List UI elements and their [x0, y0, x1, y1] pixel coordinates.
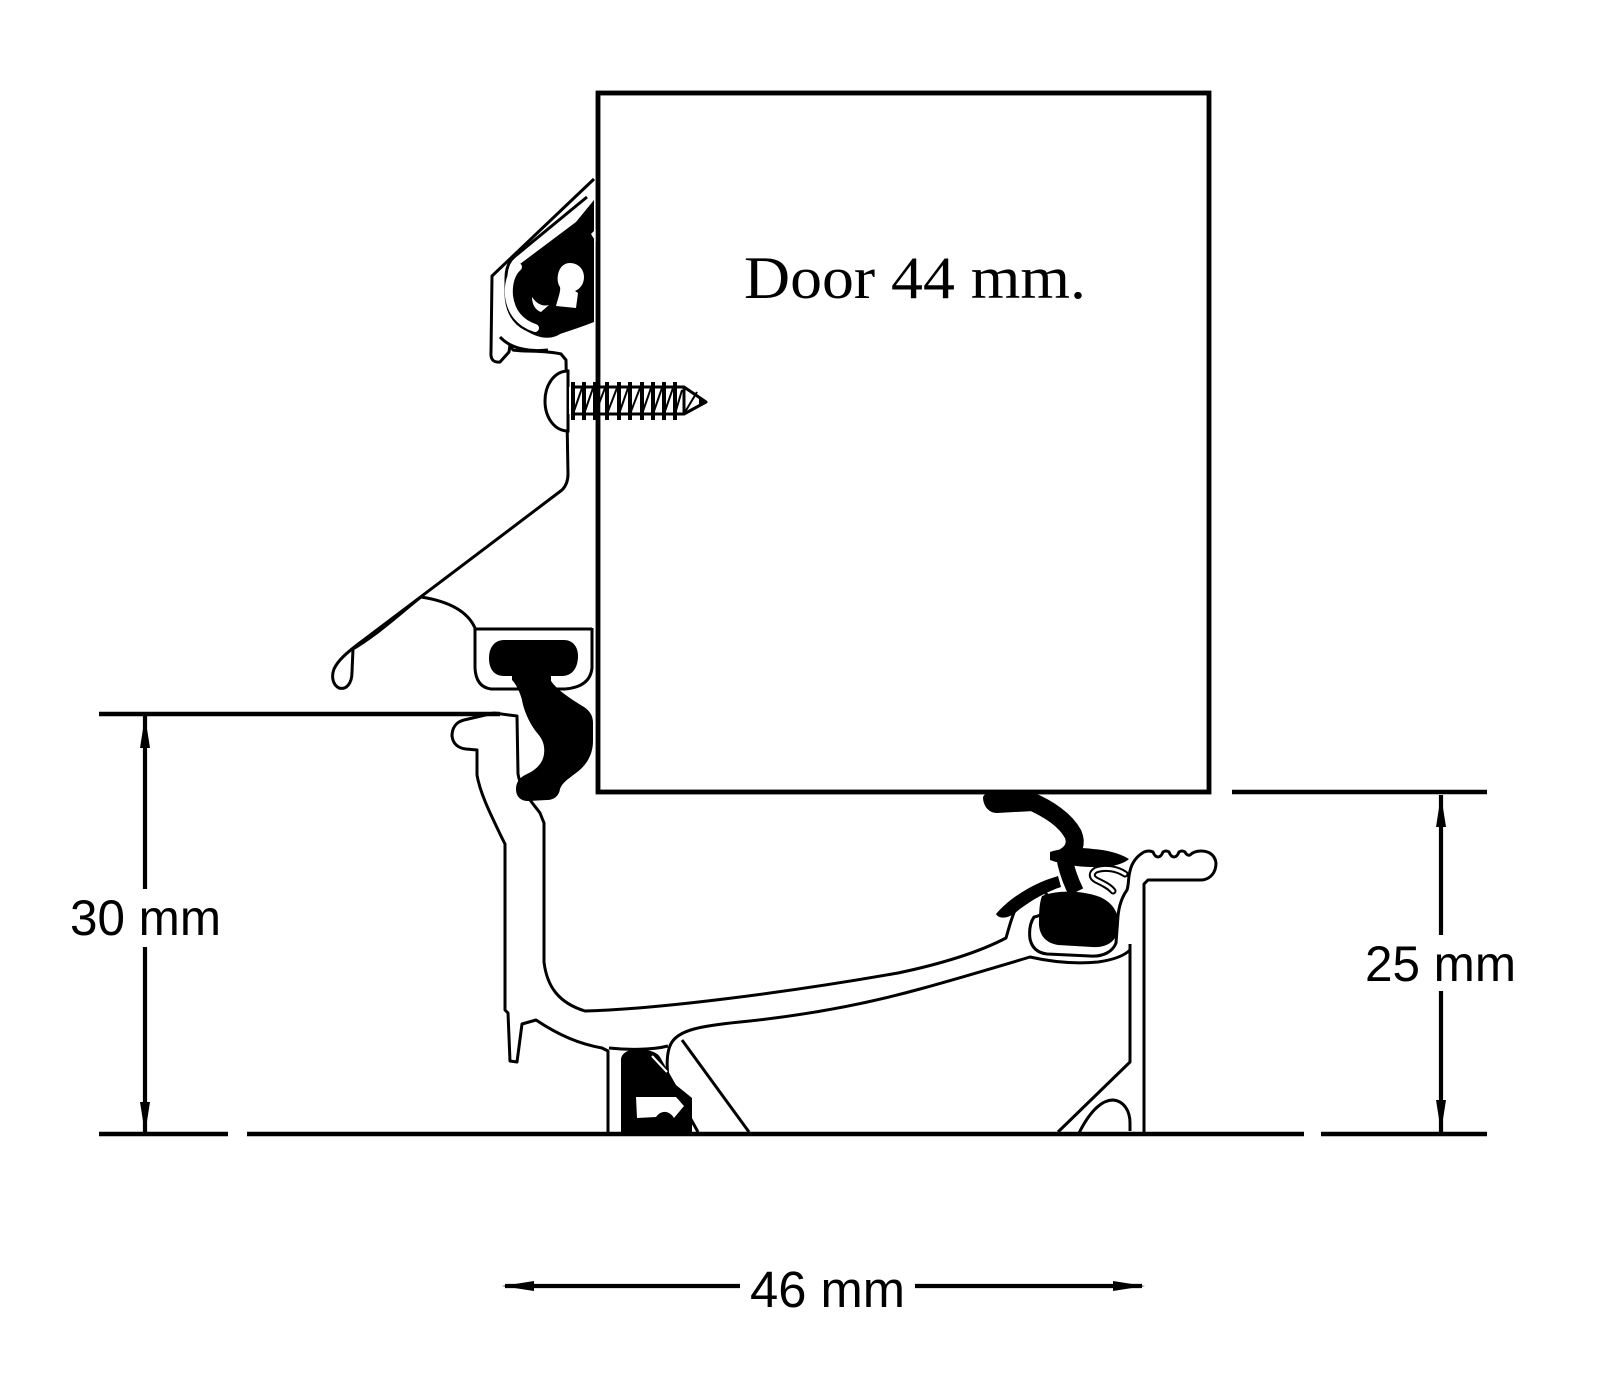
svg-text:46 mm: 46 mm: [750, 1261, 905, 1318]
svg-text:30 mm: 30 mm: [70, 890, 221, 946]
svg-text:25 mm: 25 mm: [1365, 936, 1516, 992]
svg-text:Door 44 mm.: Door 44 mm.: [744, 245, 1086, 311]
